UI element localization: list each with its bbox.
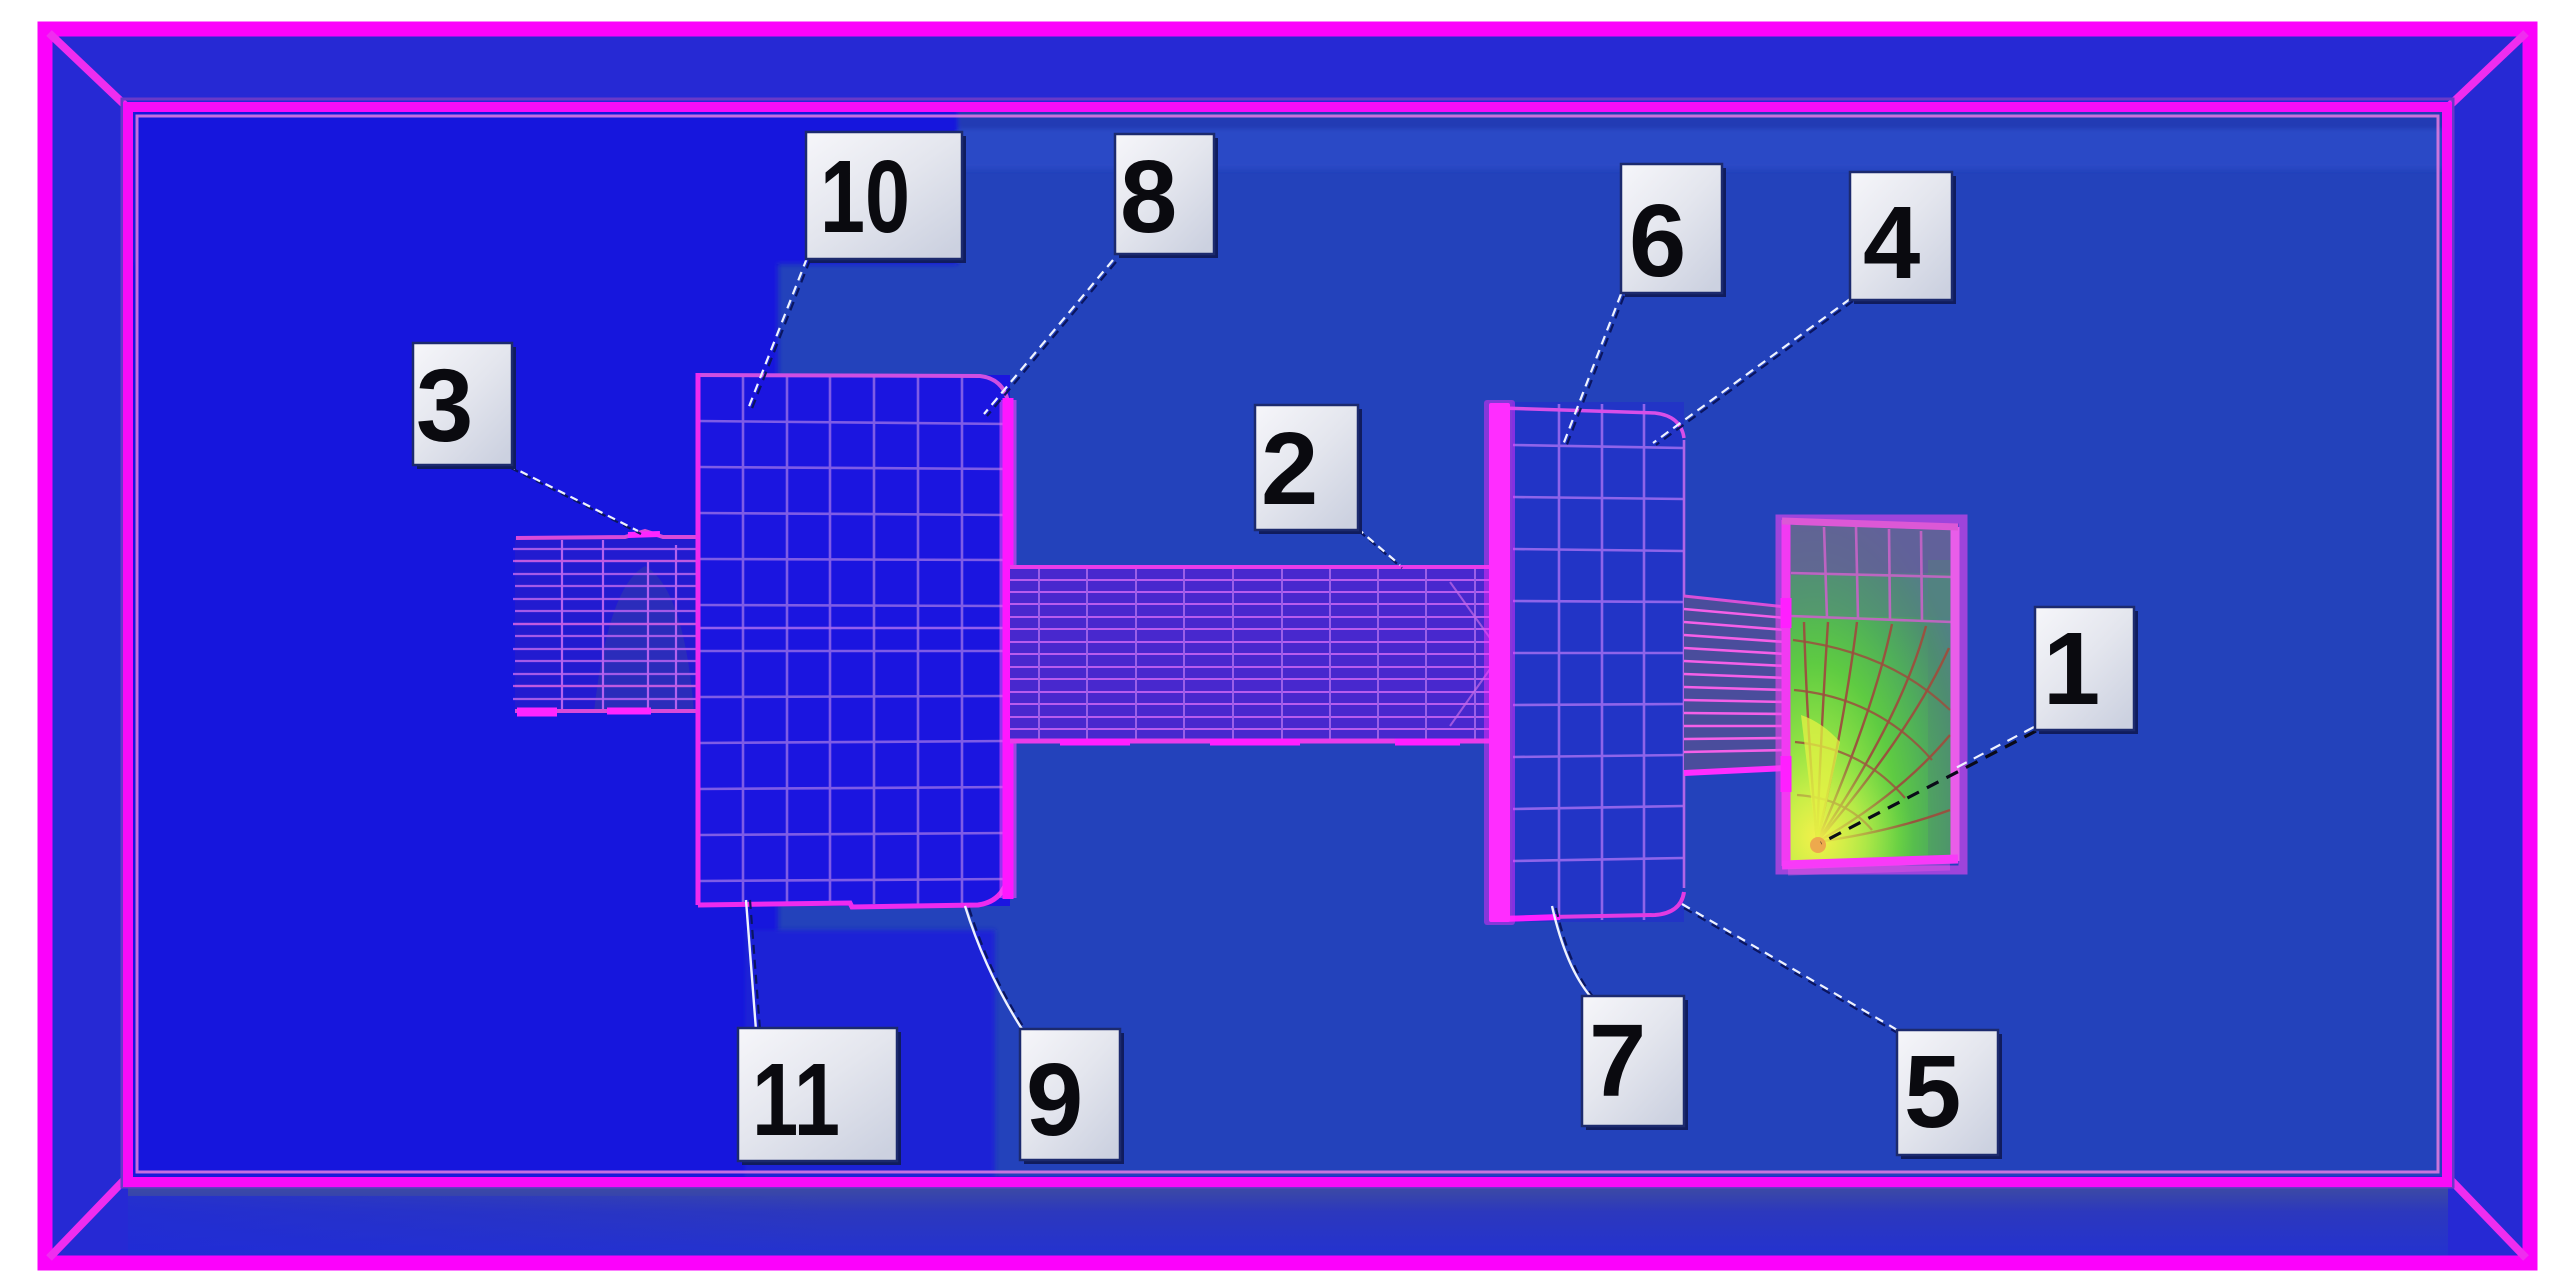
svg-text:7: 7 (1589, 1003, 1646, 1118)
svg-text:1: 1 (2043, 611, 2100, 726)
svg-text:8: 8 (1120, 139, 1177, 254)
svg-text:11: 11 (752, 1042, 840, 1157)
svg-text:3: 3 (416, 348, 473, 463)
svg-text:5: 5 (1904, 1034, 1961, 1149)
svg-text:4: 4 (1863, 185, 1920, 300)
svg-text:10: 10 (820, 139, 910, 254)
svg-text:2: 2 (1261, 411, 1318, 526)
svg-text:9: 9 (1026, 1042, 1083, 1157)
svg-text:6: 6 (1629, 183, 1686, 298)
